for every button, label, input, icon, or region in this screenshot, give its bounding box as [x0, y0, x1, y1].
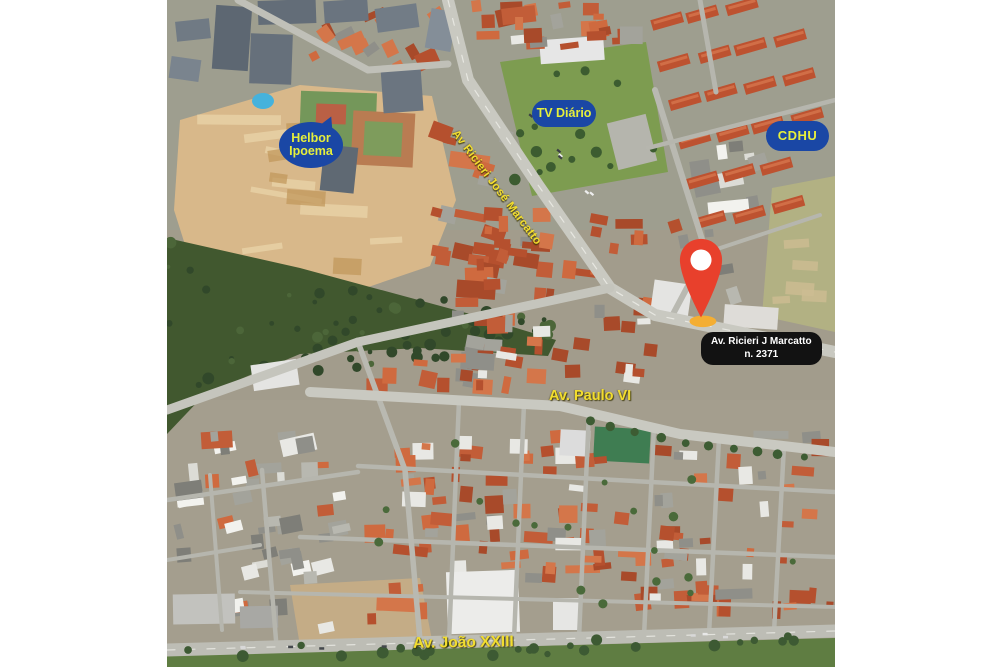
badge-tv-diario: TV Diário [532, 100, 596, 127]
address-line2: n. 2371 [711, 349, 812, 362]
badge-cdhu: CDHU [766, 121, 829, 151]
listing-map-image[interactable]: Helbor Ipoema TV Diário CDHU Av Ricieri … [0, 0, 1000, 667]
address-line1: Av. Ricieri J Marcatto [711, 336, 812, 349]
badge-cdhu-label: CDHU [778, 129, 818, 143]
address-badge: Av. Ricieri J Marcatto n. 2371 [701, 332, 822, 365]
badge-helbor-ipoema: Helbor Ipoema [279, 122, 343, 168]
map-pin-icon [678, 237, 724, 329]
road-label-av-paulo-vi: Av. Paulo VI [549, 388, 631, 404]
road-label-av-joao-xxiii: Av. João XXIII [413, 633, 514, 653]
badge-tv-label: TV Diário [537, 107, 592, 120]
location-pin [678, 237, 724, 329]
badge-helbor-line2: Ipoema [289, 145, 333, 158]
